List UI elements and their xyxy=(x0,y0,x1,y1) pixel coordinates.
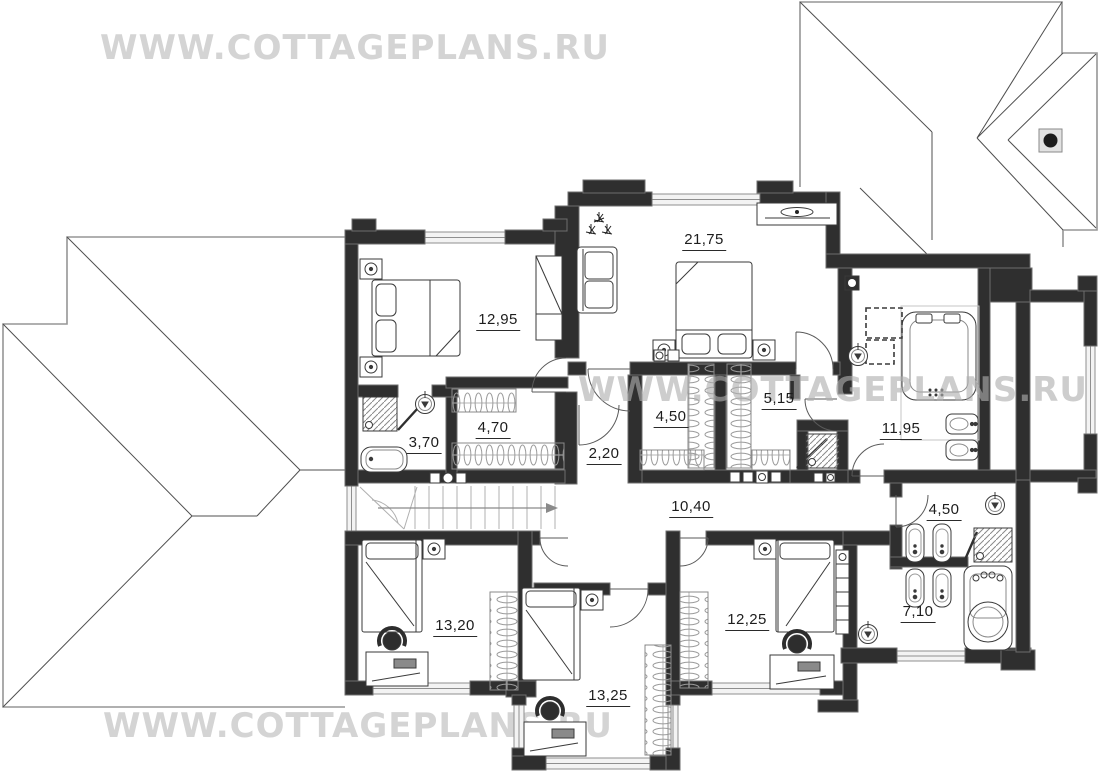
bathtub-icon xyxy=(361,447,407,472)
room-area-label-closet-left: 4,50 xyxy=(654,409,689,428)
vent-icon xyxy=(845,276,859,290)
sauna-bench-icon xyxy=(866,308,902,364)
roof-left xyxy=(3,237,345,707)
plant-icon xyxy=(586,212,612,234)
stair-newel-posts xyxy=(430,473,466,483)
room-area-label-hall: 2,20 xyxy=(587,446,622,465)
room-area-label-bedroom-bottom-right: 12,25 xyxy=(725,612,769,631)
shower-icon xyxy=(974,528,1012,562)
wardrobe-icon xyxy=(536,256,562,340)
clothes-rail-icon xyxy=(645,645,671,755)
bidet-icon xyxy=(933,524,951,562)
desk-icon xyxy=(770,655,834,689)
room-area-label-corridor: 10,40 xyxy=(669,499,713,518)
nightstand-icon xyxy=(360,259,382,279)
sink-icon xyxy=(859,621,878,644)
room-area-label-bedroom-bottom-left: 13,20 xyxy=(433,618,477,637)
nightstand-icon xyxy=(360,357,382,377)
room-area-label-bathroom-bottom-right: 7,10 xyxy=(901,604,936,623)
toilet-icon xyxy=(906,524,924,562)
room-area-label-bathroom-top-left: 3,70 xyxy=(407,435,442,454)
chair-person-icon xyxy=(537,698,563,720)
desk-icon xyxy=(524,722,586,756)
shower-icon xyxy=(363,397,397,431)
tv-console-icon xyxy=(757,203,837,225)
room-area-label-wc-bottom-right: 4,50 xyxy=(927,502,962,521)
bathtub-icon xyxy=(964,566,1012,650)
toilet-icon xyxy=(906,569,924,607)
bidet-icon xyxy=(933,569,951,607)
chair-person-icon xyxy=(784,631,810,653)
room-area-label-closet-right: 5,15 xyxy=(762,391,797,410)
clothes-rail-icon xyxy=(490,592,518,690)
double-bed-icon xyxy=(676,262,752,358)
sink-icon xyxy=(946,440,978,460)
chimney-icon xyxy=(1039,129,1062,152)
single-bed-icon xyxy=(522,588,580,680)
sofa-icon xyxy=(577,247,617,313)
room-area-label-bathroom-master: 11,95 xyxy=(880,421,922,440)
double-bed-icon xyxy=(372,280,460,356)
clothes-rail-icon xyxy=(680,592,708,688)
nightstand-icon xyxy=(754,539,776,559)
floor-plan-page: WWW.COTTAGEPLANS.RU WWW.COTTAGEPLANS.RU xyxy=(0,0,1103,782)
desk-icon xyxy=(366,652,428,686)
room-area-label-master-bedroom: 21,75 xyxy=(682,232,726,251)
nightstand-icon xyxy=(581,590,603,610)
single-bed-icon xyxy=(776,540,834,632)
shower-icon xyxy=(806,434,839,468)
sink-icon xyxy=(986,492,1005,515)
sink-icon xyxy=(946,414,978,434)
room-area-label-wardrobe-top-left: 4,70 xyxy=(476,420,511,439)
watermark-middle: WWW.COTTAGEPLANS.RU xyxy=(578,370,1088,410)
nightstand-icon xyxy=(753,340,775,360)
roof-top-right xyxy=(800,2,1097,262)
room-area-label-bedroom-bottom-middle: 13,25 xyxy=(586,688,630,707)
shelf-icon xyxy=(836,550,849,634)
nightstand-icon xyxy=(423,539,445,559)
single-bed-icon xyxy=(362,540,422,632)
stair-direction-arrow xyxy=(378,503,558,513)
room-area-label-bedroom-top-left: 12,95 xyxy=(476,312,520,331)
